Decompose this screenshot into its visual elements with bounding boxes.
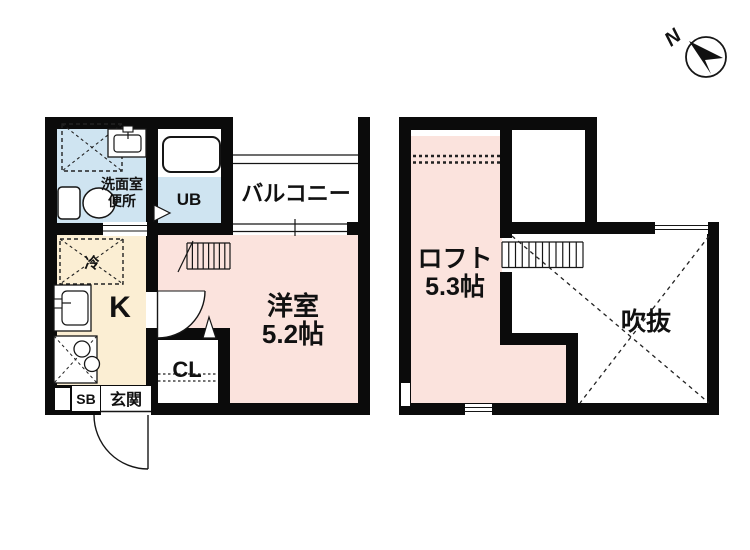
void-top-window [655, 222, 708, 234]
balcony-label: バルコニー [241, 181, 351, 206]
toilet-tank-icon [58, 187, 80, 219]
wall [500, 117, 512, 238]
floor-plan: N 洗面室 便所 UB バルコニー 洋室 5.2帖 K 冷 CL SB 玄関 ロ… [0, 0, 750, 550]
wall [399, 403, 719, 415]
loft-area-extension [502, 345, 566, 403]
wall [221, 117, 233, 235]
wall [500, 222, 655, 234]
wall [399, 117, 411, 415]
kitchen-label: K [109, 291, 131, 324]
refrigerator-label: 冷 [84, 254, 99, 272]
floor-plan-drawing: N 洗面室 便所 UB バルコニー 洋室 5.2帖 K 冷 CL SB 玄関 ロ… [0, 0, 750, 550]
void-label: 吹抜 [621, 308, 672, 336]
unit-bath-label: UB [177, 190, 202, 209]
loft-size-label: 5.3帖 [425, 273, 485, 301]
loft-side-window [401, 383, 410, 406]
stairs-icon-loft [502, 242, 583, 268]
wall [146, 235, 158, 292]
entrance-side-window [55, 388, 70, 410]
wall [218, 328, 230, 403]
stove-burner-icon [74, 341, 90, 357]
wall [358, 117, 370, 415]
wall [347, 222, 358, 235]
wall [707, 222, 719, 415]
shoe-box-label: SB [76, 391, 95, 407]
basin-faucet-icon [123, 126, 133, 132]
wall [585, 117, 597, 233]
north-compass: N [661, 25, 726, 77]
closet-label: CL [172, 357, 201, 382]
north-label: N [661, 25, 686, 52]
kitchen-faucet-icon [54, 299, 62, 308]
kitchen-sink-icon [62, 291, 88, 325]
loft-label: ロフト [417, 245, 492, 273]
wall [399, 117, 597, 130]
stove-burner-icon [85, 357, 100, 372]
washroom-label-line2: 便所 [108, 193, 136, 209]
western-room-label: 洋室 [267, 291, 319, 321]
washroom-label-line1: 洗面室 [101, 176, 143, 192]
western-room-size-label: 5.2帖 [262, 319, 324, 349]
entrance-door-swing-fill [94, 415, 148, 469]
washroom-sliding-door [103, 222, 147, 236]
wall [45, 117, 233, 129]
north-arrow-icon [689, 41, 723, 74]
bathtub-icon [163, 137, 220, 172]
wall [566, 333, 578, 403]
entrance-label: 玄関 [110, 390, 142, 409]
loft-bottom-window [465, 404, 492, 415]
